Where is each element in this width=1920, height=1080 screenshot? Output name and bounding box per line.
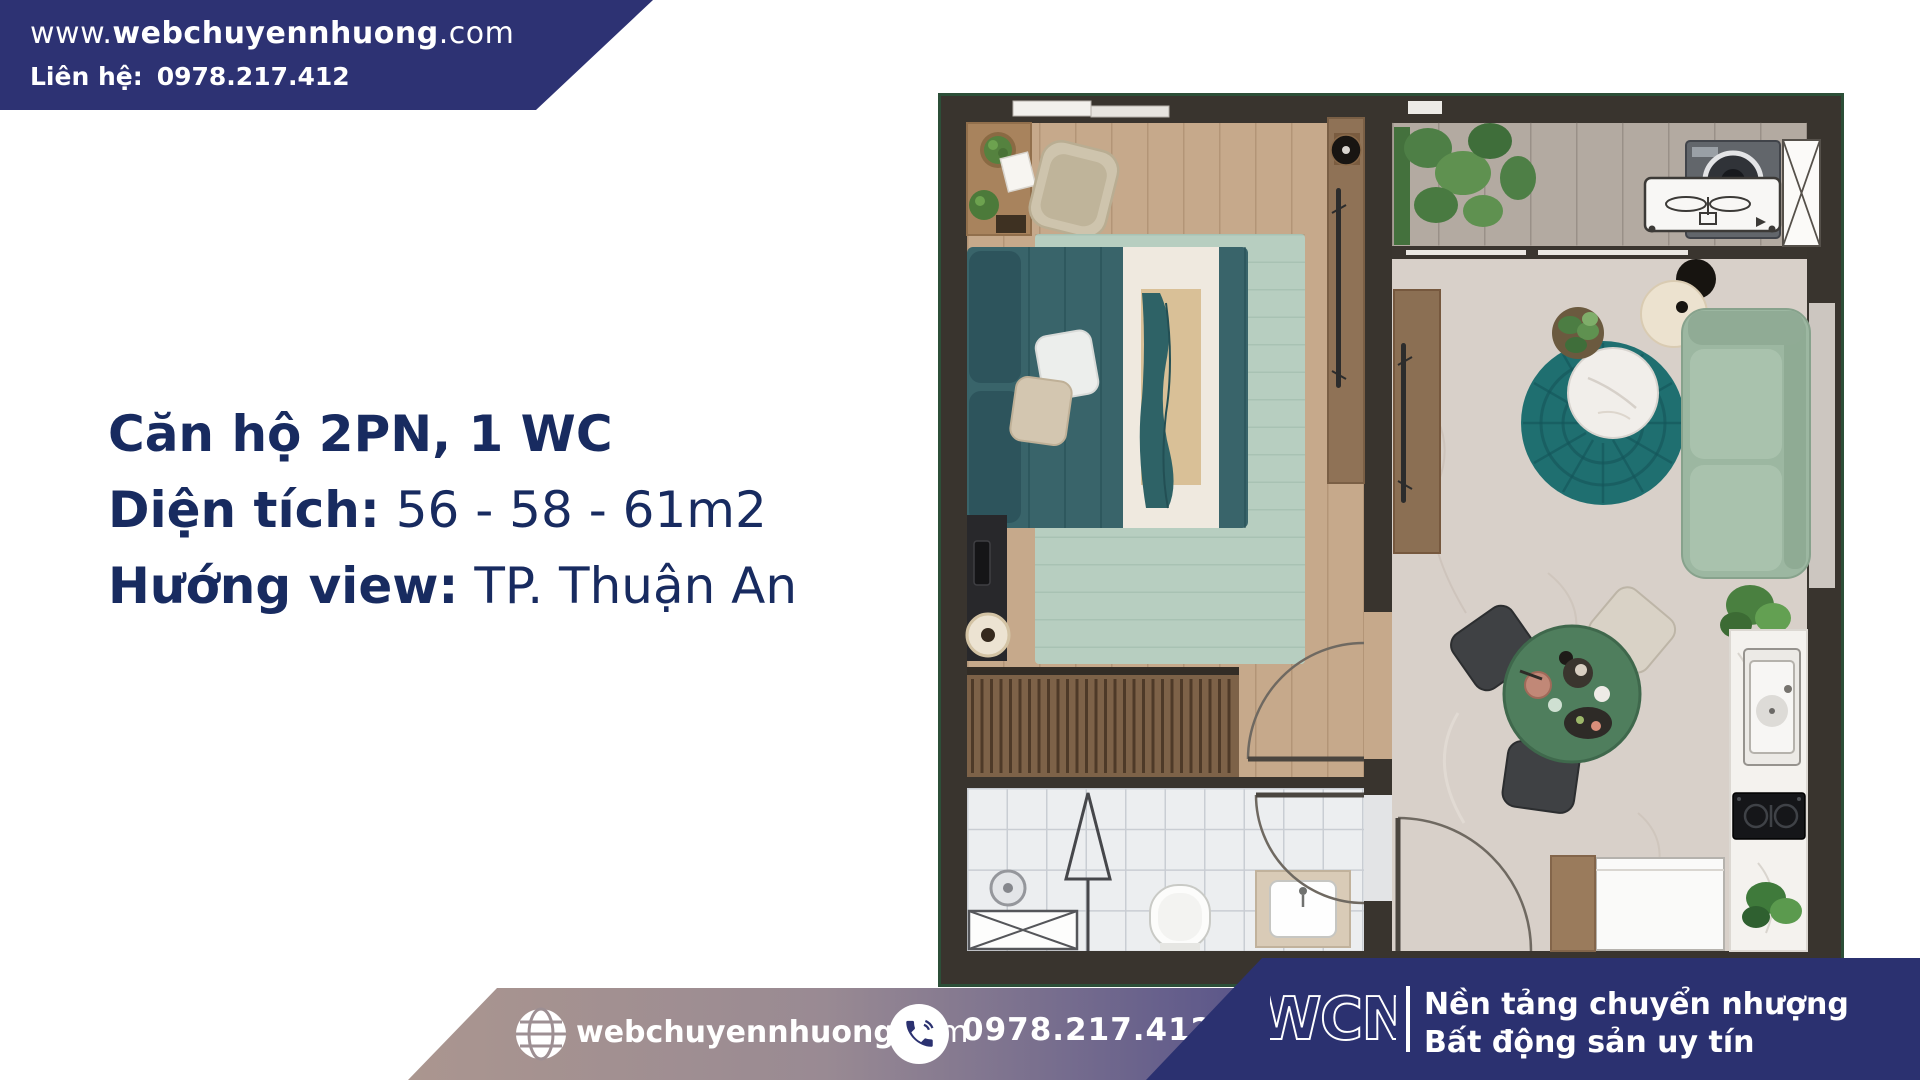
footer-phone[interactable]: 0978.217.412 — [962, 1012, 1213, 1048]
listing-title: Căn hộ 2PN, 1 WC — [108, 396, 797, 472]
url-suffix: .com — [439, 16, 515, 51]
area-value: 56 - 58 - 61m2 — [396, 481, 767, 539]
balcony-sill — [1392, 246, 1807, 259]
drying-rack — [1645, 178, 1780, 233]
tagline-line2: Bất động sản uy tín — [1424, 1024, 1849, 1062]
view-value: TP. Thuận An — [474, 557, 797, 615]
bathtub-tray — [969, 911, 1077, 949]
listing-area: Diện tích: 56 - 58 - 61m2 — [108, 472, 797, 548]
vanity-sink — [1256, 871, 1350, 947]
banner-phone[interactable]: 0978.217.412 — [157, 62, 350, 91]
cooktop — [1733, 793, 1805, 839]
footer-tagline: Nền tảng chuyển nhượng Bất động sản uy t… — [1424, 986, 1849, 1062]
wcn-logo: WCN — [1270, 974, 1396, 1066]
wcn-panel: WCN Nền tảng chuyển nhượng Bất động sản … — [1140, 958, 1920, 1080]
footer-site-bold: webchuyennhuong — [576, 1015, 895, 1050]
area-label: Diện tích: — [108, 481, 380, 539]
coffee-table — [1568, 348, 1658, 438]
globe-icon — [512, 1005, 570, 1063]
kitchen-cabinet — [1551, 856, 1595, 951]
plant-pot — [1552, 307, 1604, 359]
banner-contact: Liên hệ:0978.217.412 — [30, 62, 350, 91]
door-gap-floor — [1364, 612, 1392, 759]
phone-icon — [889, 1004, 949, 1064]
living-window — [1809, 303, 1835, 588]
tv-console — [1394, 290, 1440, 553]
balcony-window — [1783, 140, 1820, 246]
bath-door-gap-floor — [1364, 795, 1392, 901]
dining-table — [1504, 626, 1640, 762]
deck — [967, 667, 1239, 777]
page: www.webchuyennhuong.com Liên hệ:0978.217… — [0, 0, 1920, 1080]
contact-label: Liên hệ: — [30, 62, 143, 91]
floor-plan — [938, 93, 1844, 987]
url-bold: webchuyennhuong — [112, 16, 438, 51]
url-prefix: www. — [30, 16, 112, 51]
tagline-line1: Nền tảng chuyển nhượng — [1424, 986, 1849, 1024]
kitchen-sink — [1744, 649, 1800, 765]
tv-bench — [967, 515, 1009, 661]
bed-pillow-beige — [1009, 375, 1073, 446]
wcn-logo-text: WCN — [1270, 985, 1396, 1053]
wardrobe — [1328, 118, 1364, 483]
listing-info: Căn hộ 2PN, 1 WC Diện tích: 56 - 58 - 61… — [108, 396, 797, 624]
toilet — [1150, 885, 1210, 951]
view-label: Hướng view: — [108, 557, 458, 615]
logo-divider — [1406, 986, 1410, 1052]
fridge — [1596, 858, 1724, 950]
top-banner: www.webchuyennhuong.com Liên hệ:0978.217… — [0, 0, 700, 110]
bedside-table — [967, 123, 1036, 235]
sofa — [1682, 309, 1810, 578]
banner-website-link[interactable]: www.webchuyennhuong.com — [30, 16, 514, 51]
listing-view: Hướng view: TP. Thuận An — [108, 548, 797, 624]
bed — [967, 247, 1248, 528]
